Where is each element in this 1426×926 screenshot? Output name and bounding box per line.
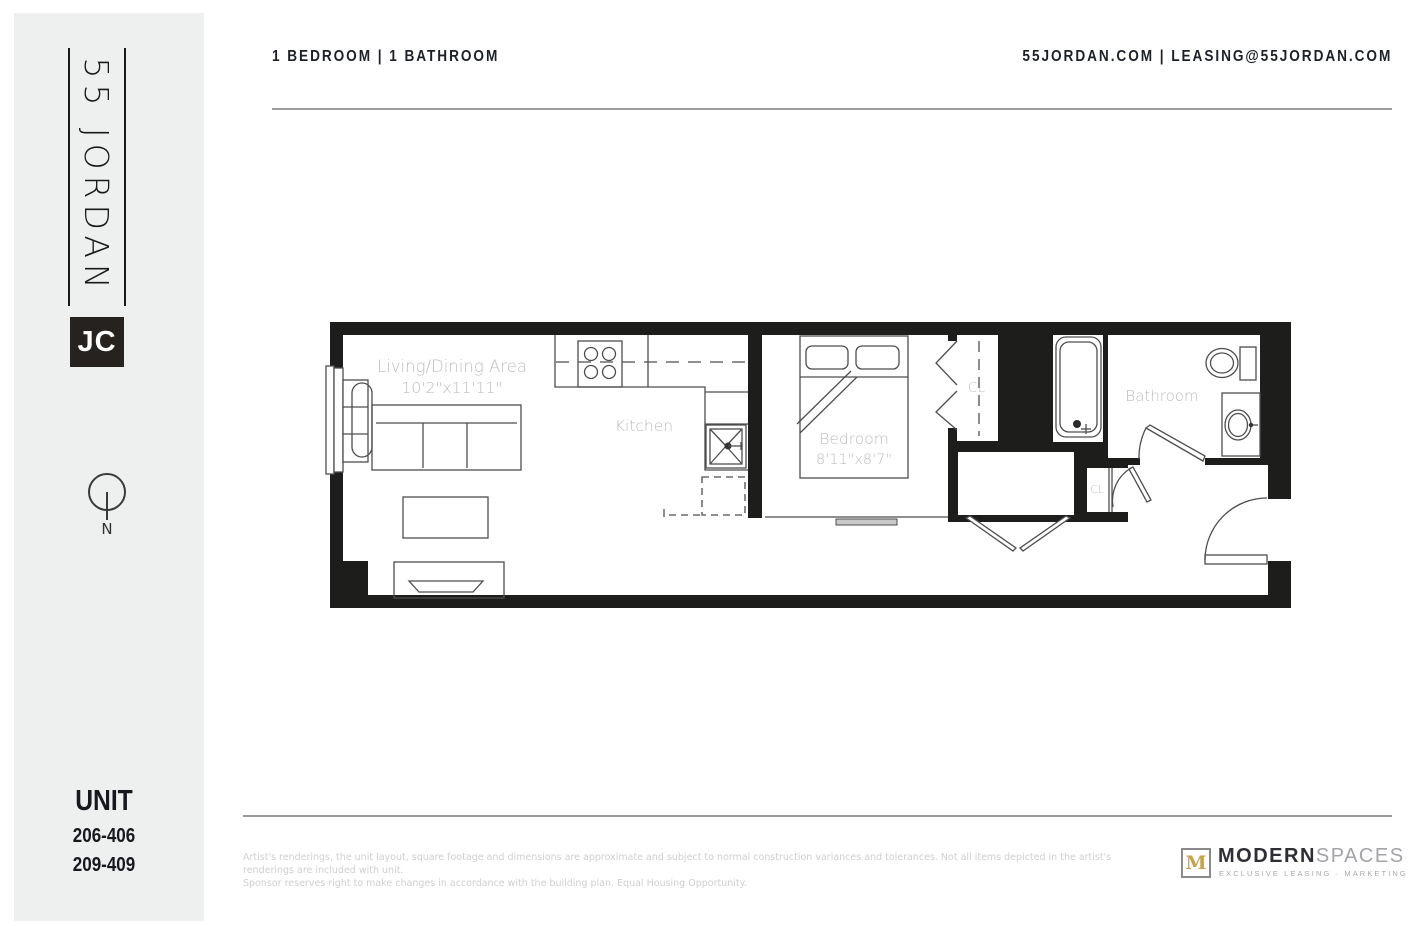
disclaimer-line: Artist's renderings, the unit layout, sq… (243, 851, 1143, 877)
bedroom-label: Bedroom (819, 430, 889, 448)
disclaimer-line: Sponsor reserves right to make changes i… (243, 877, 1143, 890)
compass-north-label: N (87, 520, 127, 538)
sidebar: 55 JORDAN JC N UNIT 206-406 209-409 (14, 13, 204, 921)
window (326, 366, 372, 474)
brand-name-bold: MODERN (1218, 845, 1316, 867)
modern-spaces-monogram: M (1181, 848, 1211, 878)
bathroom-label: Bathroom (1125, 387, 1198, 405)
bedroom-dimensions: 8'11"x8'7" (816, 452, 892, 468)
living-label: Living/Dining Area (377, 357, 527, 376)
logo-rule-left (68, 48, 70, 306)
modern-spaces-name: MODERNSPACES (1218, 845, 1405, 868)
unit-type-heading: 1 BEDROOM | 1 BATHROOM (272, 48, 499, 66)
brand-name-light: SPACES (1316, 845, 1405, 867)
building-logo: 55 JORDAN (74, 46, 118, 306)
brand-tagline: EXCLUSIVE LEASING · MARKETING (1219, 869, 1408, 878)
flyer-page: 55 JORDAN JC N UNIT 206-406 209-409 1 BE… (0, 0, 1426, 926)
modern-spaces-logo: M MODERNSPACES EXCLUSIVE LEASING · MARKE… (1181, 845, 1393, 887)
entry-closet-label: CL (1090, 483, 1104, 496)
kitchen-label: Kitchen (615, 417, 673, 435)
logo-rule-right (124, 48, 126, 306)
unit-number: 206-406 (49, 825, 160, 848)
unit-heading: UNIT (49, 785, 160, 818)
logo-badge-jc: JC (70, 317, 124, 367)
footer-rule (243, 815, 1392, 817)
bedroom-closet-label: CL (968, 381, 986, 396)
contact-heading: 55JORDAN.COM | LEASING@55JORDAN.COM (1022, 48, 1392, 66)
header-rule (272, 108, 1392, 110)
unit-number: 209-409 (49, 854, 160, 877)
living-dimensions: 10'2"x11'11" (402, 379, 503, 397)
disclaimer: Artist's renderings, the unit layout, sq… (243, 851, 1143, 890)
floorplan: Living/Dining Area 10'2"x11'11" Kitchen … (325, 318, 1291, 610)
compass-needle (106, 492, 108, 520)
